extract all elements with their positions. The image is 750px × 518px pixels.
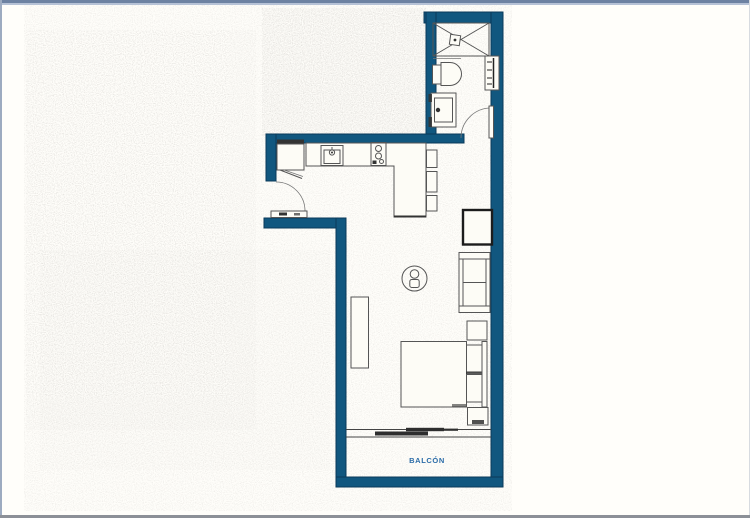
- floor-plan-drawing: BALCÓN: [0, 0, 750, 518]
- nightstand-symbol: [467, 321, 487, 340]
- page-border-top-inner: [0, 3, 750, 5]
- double-bed-symbol: [401, 342, 487, 408]
- sofa-symbol: [459, 253, 490, 313]
- nightstand-symbol: [468, 408, 489, 426]
- balcony-label: BALCÓN: [409, 456, 445, 465]
- toilet-symbol: [433, 63, 462, 86]
- page-border-left: [0, 0, 2, 518]
- washbasin-symbol: [429, 93, 457, 127]
- pillow-symbol: [467, 345, 483, 372]
- bar-stools-symbol: [427, 150, 438, 211]
- headboard-symbol: [482, 342, 487, 408]
- towel-radiator-symbol: [485, 56, 499, 90]
- wall-segment: [264, 218, 346, 228]
- tv-unit-symbol: [463, 210, 492, 245]
- wall-segment: [336, 218, 346, 487]
- wall-segment: [266, 134, 276, 181]
- floor-plan-page: BALCÓN: [0, 0, 750, 518]
- pillow-symbol: [467, 375, 483, 403]
- sideboard-symbol: [351, 297, 369, 368]
- wall-segment: [336, 477, 503, 487]
